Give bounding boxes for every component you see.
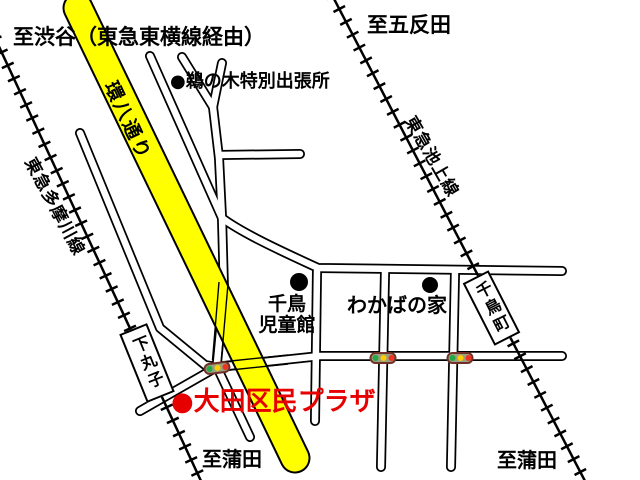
chidori-jidokan-line1: 千鳥 xyxy=(258,294,315,315)
signal-red-bulb xyxy=(465,355,471,361)
chidori-jidokan-dot xyxy=(290,273,308,291)
wakaba-house-dot xyxy=(422,277,438,293)
access-map: 下丸子 千鳥町 至渋谷（東急東横線経由） 至五反田 ●鵜の木特別出張所 環八通り… xyxy=(0,0,640,480)
traffic-signal xyxy=(447,352,474,364)
chidori-jidokan-label: 千鳥 児童館 xyxy=(258,294,315,336)
unoki-branch-office-label: ●鵜の木特別出張所 xyxy=(170,72,330,92)
to-kamata-right-label: 至蒲田 xyxy=(497,449,557,471)
signal-green-bulb xyxy=(206,366,213,373)
signal-red-bulb xyxy=(388,355,394,361)
chidori-jidokan-line2: 児童館 xyxy=(258,315,315,336)
wakaba-house-label: わかばの家 xyxy=(347,294,447,316)
signal-red-bulb xyxy=(222,364,229,371)
to-shibuya-label: 至渋谷（東急東横線経由） xyxy=(13,26,265,49)
signal-yellow-bulb xyxy=(214,365,221,372)
traffic-signal xyxy=(370,352,397,364)
to-gotanda-label: 至五反田 xyxy=(367,14,451,37)
signal-yellow-bulb xyxy=(457,355,463,361)
signal-yellow-bulb xyxy=(380,355,386,361)
signal-green-bulb xyxy=(449,355,455,361)
ota-plaza-label: ●大田区民プラザ xyxy=(171,388,376,417)
to-kamata-left-label: 至蒲田 xyxy=(202,448,262,470)
signal-green-bulb xyxy=(372,355,378,361)
